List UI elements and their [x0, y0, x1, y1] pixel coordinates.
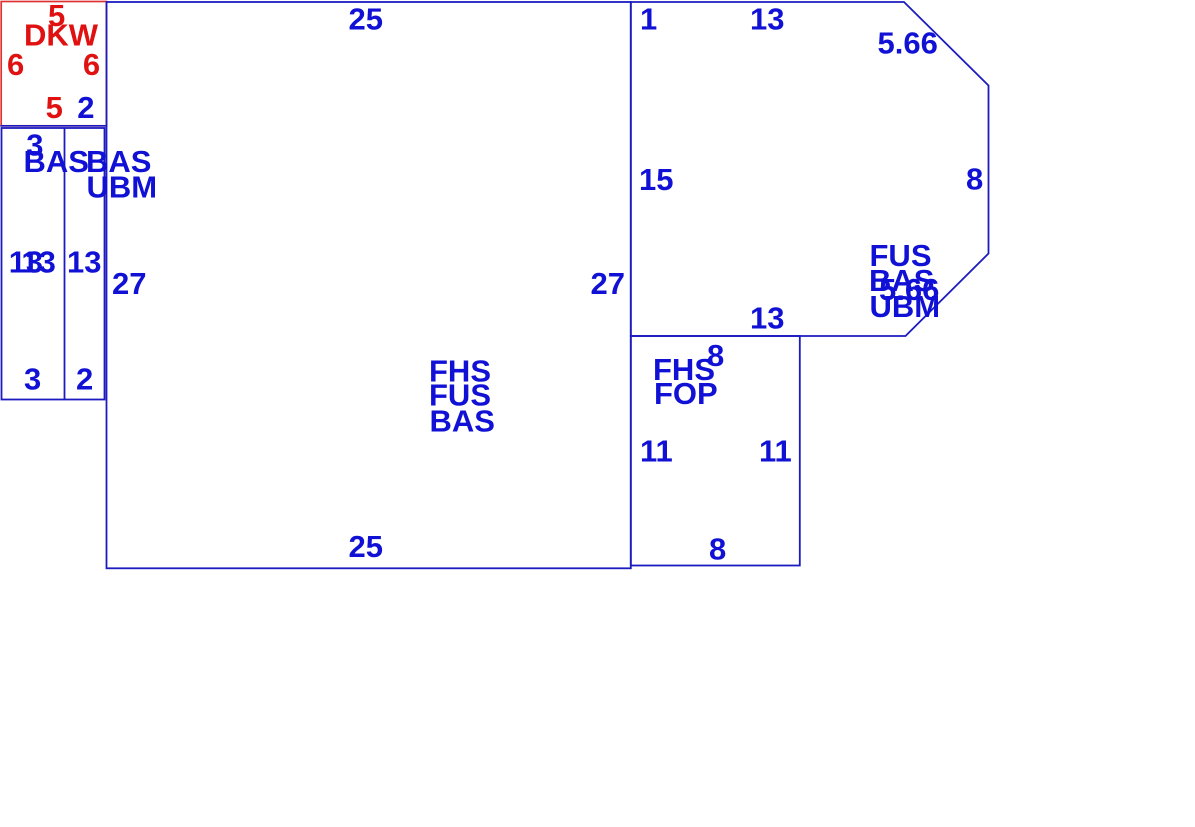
svg-text:25: 25 — [349, 1, 383, 36]
svg-text:UBM: UBM — [870, 289, 941, 324]
svg-text:11: 11 — [640, 434, 673, 469]
svg-text:UBM: UBM — [87, 170, 158, 205]
svg-text:5: 5 — [46, 90, 63, 125]
svg-text:3: 3 — [24, 362, 41, 397]
svg-text:8: 8 — [966, 162, 983, 197]
svg-text:13: 13 — [750, 301, 784, 336]
svg-text:13: 13 — [67, 245, 101, 280]
svg-text:FOP: FOP — [654, 376, 718, 411]
svg-text:8: 8 — [709, 532, 726, 567]
svg-text:BAS: BAS — [430, 404, 495, 439]
svg-text:6: 6 — [83, 47, 100, 82]
svg-text:27: 27 — [112, 266, 146, 301]
svg-text:13: 13 — [21, 245, 55, 280]
svg-text:15: 15 — [639, 162, 673, 197]
svg-text:6: 6 — [7, 47, 24, 82]
svg-text:BAS: BAS — [24, 144, 89, 179]
svg-text:2: 2 — [77, 90, 94, 125]
svg-text:27: 27 — [591, 266, 625, 301]
svg-text:11: 11 — [759, 434, 792, 469]
svg-text:25: 25 — [349, 529, 383, 564]
svg-text:5.66: 5.66 — [878, 26, 938, 61]
svg-text:2: 2 — [76, 362, 93, 397]
svg-text:1: 1 — [640, 1, 657, 36]
svg-text:13: 13 — [750, 1, 784, 36]
